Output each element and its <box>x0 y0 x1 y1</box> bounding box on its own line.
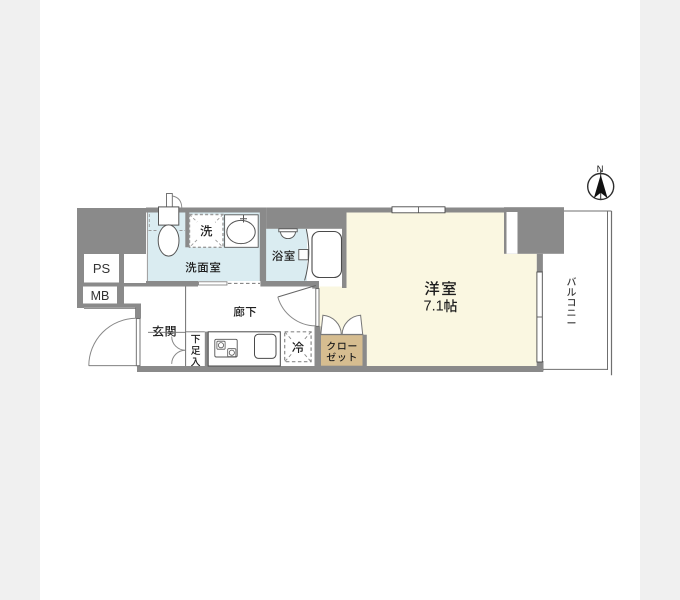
svg-text:MB: MB <box>91 289 110 303</box>
svg-text:N: N <box>597 164 604 175</box>
svg-text:7.1: 7.1 <box>424 299 444 315</box>
svg-text:PS: PS <box>93 261 111 276</box>
